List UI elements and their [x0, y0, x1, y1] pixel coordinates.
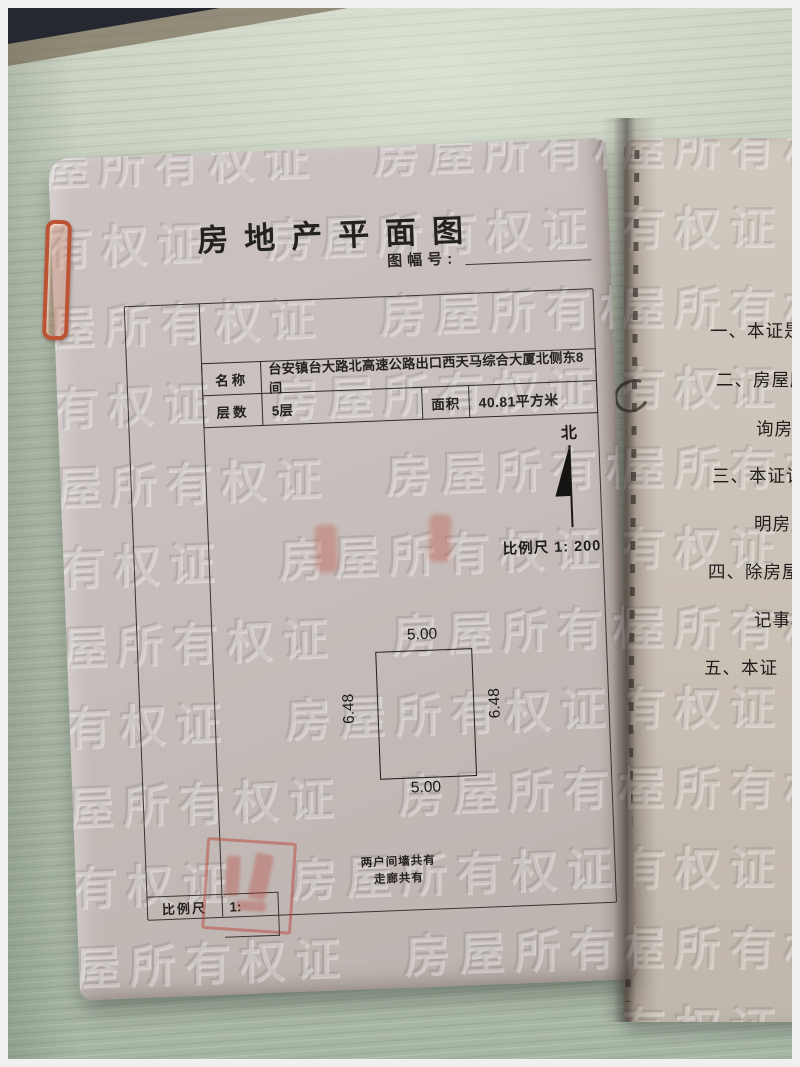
north-arrow-icon — [549, 444, 592, 527]
shared-wall-note: 两户间墙共有 走廊共有 — [313, 851, 484, 892]
area-value-cell: 40.81平方米 — [469, 381, 597, 417]
north-label: 北 — [540, 418, 597, 444]
floor-value-cell: 5层 — [262, 388, 423, 425]
note-item-4: 四、除房屋 — [708, 559, 792, 584]
notes-list: 一、本证是 二、房屋所 询房屋 三、本证记 明房屋 四、除房屋 记事项 五、本证 — [624, 138, 792, 1022]
north-indicator: 北 — [540, 418, 600, 528]
left-page: 房屋所有权证 房屋所有权证 房屋所有权证 房屋所有权证 房屋所有权证 房屋所有权… — [48, 138, 638, 1001]
sheet-number-label: 图幅号: — [387, 250, 458, 270]
red-clip — [42, 220, 72, 341]
red-seal-stamp — [201, 837, 297, 935]
screenshot-root: { "photo": { "watermark_text": "房屋所有权证" … — [0, 0, 800, 1067]
faint-stamp-mark — [428, 514, 451, 563]
faint-stamp-mark — [314, 524, 338, 573]
dimension-right: 6.48 — [485, 681, 505, 726]
floor-plan-outline — [375, 648, 477, 780]
dimension-left: 6.48 — [340, 687, 360, 732]
dimension-top: 5.00 — [374, 624, 470, 646]
stamp-glyph-mark — [224, 855, 241, 896]
stamp-glyph-mark — [247, 852, 274, 901]
note-item-4-cont: 记事项 — [754, 607, 792, 632]
note-item-5: 五、本证 — [704, 655, 778, 680]
stamp-glyph-mark — [235, 900, 266, 912]
sheet-number-blank-line — [465, 259, 591, 265]
photo-area: 房屋所有权证 房屋所有权证 房屋所有权证 房屋所有权证 房屋所有权证 房屋所有权… — [8, 8, 792, 1059]
note-item-2-cont: 询房屋 — [756, 416, 792, 441]
right-page: 房屋所有权证 房屋所有权证 房屋所有权证 房屋所有权证 房屋所有权证 房屋所有权… — [624, 138, 792, 1022]
note-item-1: 一、本证是 — [710, 318, 792, 343]
floor-label-cell: 层数 — [203, 394, 263, 427]
note-item-2: 二、房屋所 — [716, 367, 792, 392]
note-item-3-cont: 明房屋 — [754, 511, 792, 536]
area-label-cell: 面积 — [422, 386, 470, 419]
dimension-bottom: 5.00 — [378, 777, 474, 799]
note-item-3: 三、本证记 — [712, 463, 792, 488]
name-label-cell: 名称 — [202, 362, 262, 395]
